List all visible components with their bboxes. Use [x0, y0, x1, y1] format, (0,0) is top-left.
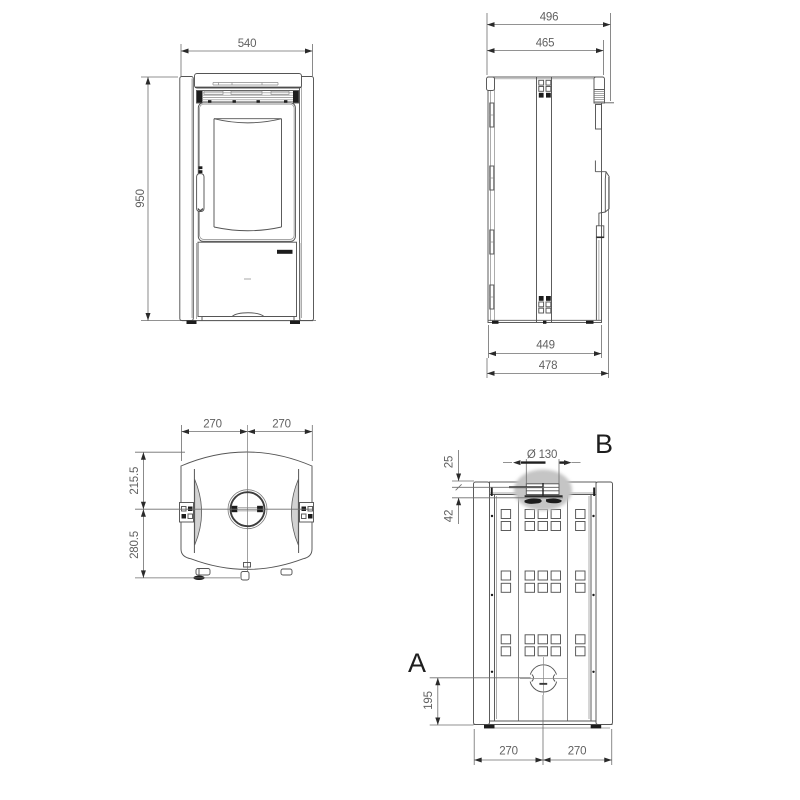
svg-text:449: 449 [536, 340, 555, 352]
svg-text:215.5: 215.5 [129, 467, 141, 495]
svg-text:496: 496 [540, 12, 559, 24]
svg-text:270: 270 [568, 746, 587, 758]
svg-text:270: 270 [272, 419, 291, 431]
svg-text:Ø 130: Ø 130 [527, 449, 557, 461]
svg-text:B: B [595, 429, 613, 459]
svg-text:950: 950 [135, 189, 147, 208]
svg-text:540: 540 [238, 38, 257, 50]
svg-text:195: 195 [423, 691, 435, 710]
svg-text:42: 42 [444, 510, 456, 522]
svg-text:280.5: 280.5 [129, 531, 141, 559]
svg-text:A: A [408, 648, 426, 678]
svg-text:465: 465 [536, 38, 555, 50]
svg-text:478: 478 [539, 360, 558, 372]
svg-text:270: 270 [499, 746, 518, 758]
svg-text:270: 270 [203, 419, 222, 431]
svg-text:25: 25 [444, 456, 456, 468]
